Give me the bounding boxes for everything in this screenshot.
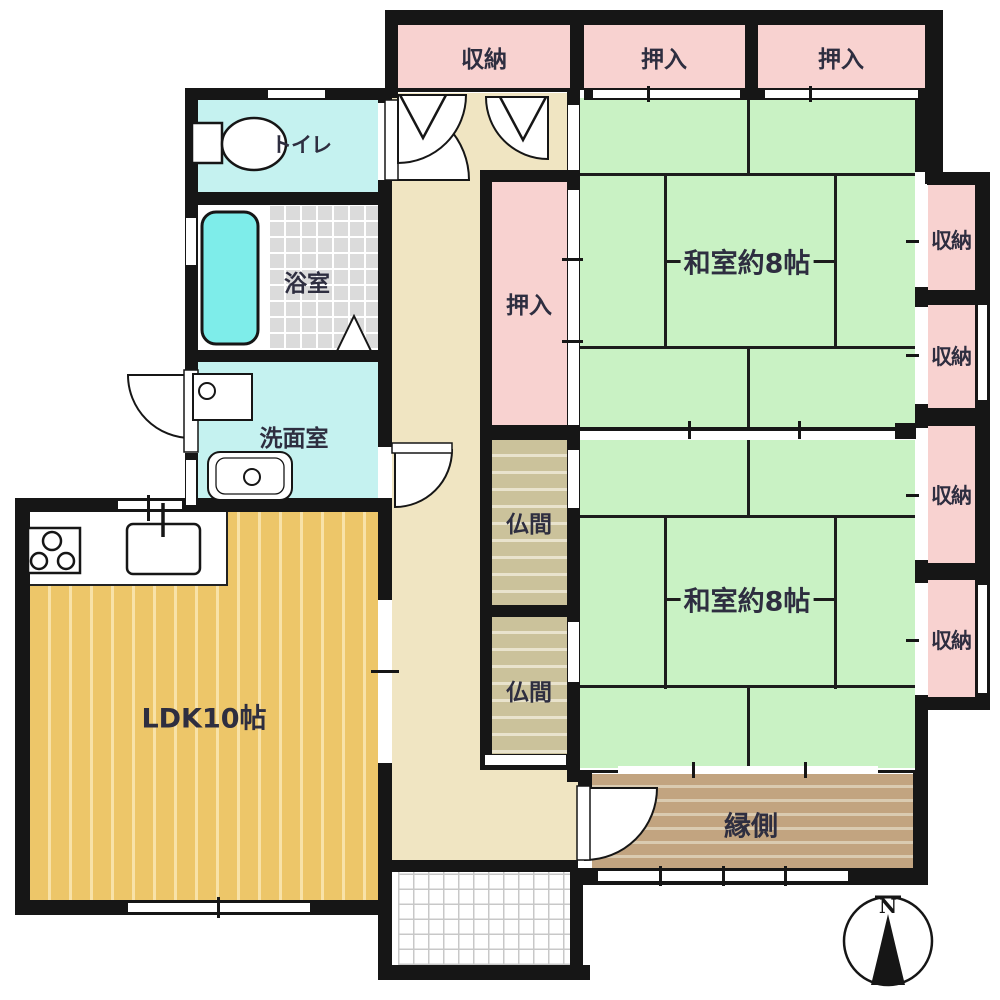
fixtures-overlay: N (0, 0, 1000, 1000)
room-label-ldk: LDK10帖 (141, 697, 266, 736)
bath-door-icon (337, 316, 371, 351)
room-label-storage-top: 収納 (461, 40, 507, 74)
room-label-butsuma-lower: 仏間 (506, 673, 552, 707)
sink-icon (208, 452, 292, 500)
kitchen-sink-icon (127, 503, 200, 574)
door-arc (577, 786, 657, 860)
room-label-storage-right-1: 収納 (931, 225, 971, 255)
room-label-storage-right-3: 収納 (931, 480, 971, 510)
room-label-washitsu-lower: 和室約8帖 (681, 580, 814, 619)
room-label-storage-right-4: 収納 (931, 625, 971, 655)
room-label-bath: 浴室 (284, 264, 330, 298)
room-label-oshiire-center: 押入 (506, 286, 552, 320)
room-label-toilet: トイレ (271, 129, 331, 159)
bathtub-icon (202, 212, 258, 344)
room-label-butsuma-upper: 仏間 (506, 505, 552, 539)
floorplan: N 収納 押入 押入 トイレ 浴室 洗面室 押入 仏間 仏間 和室約8帖 和室約… (0, 0, 1000, 1000)
kitchen-stove-icon (28, 528, 80, 573)
compass: N (844, 894, 932, 985)
compass-label: N (879, 894, 897, 918)
room-label-storage-right-2: 収納 (931, 341, 971, 371)
room-label-oshiire-top-right: 押入 (818, 40, 864, 74)
room-label-washroom: 洗面室 (260, 419, 329, 453)
room-label-oshiire-top-left: 押入 (641, 40, 687, 74)
washing-machine-icon (193, 374, 252, 420)
door-arc (392, 443, 452, 507)
folding-door-icon (486, 97, 548, 159)
room-label-washitsu-upper: 和室約8帖 (681, 242, 814, 281)
door-arc (128, 370, 198, 452)
room-label-engawa: 縁側 (724, 805, 778, 844)
